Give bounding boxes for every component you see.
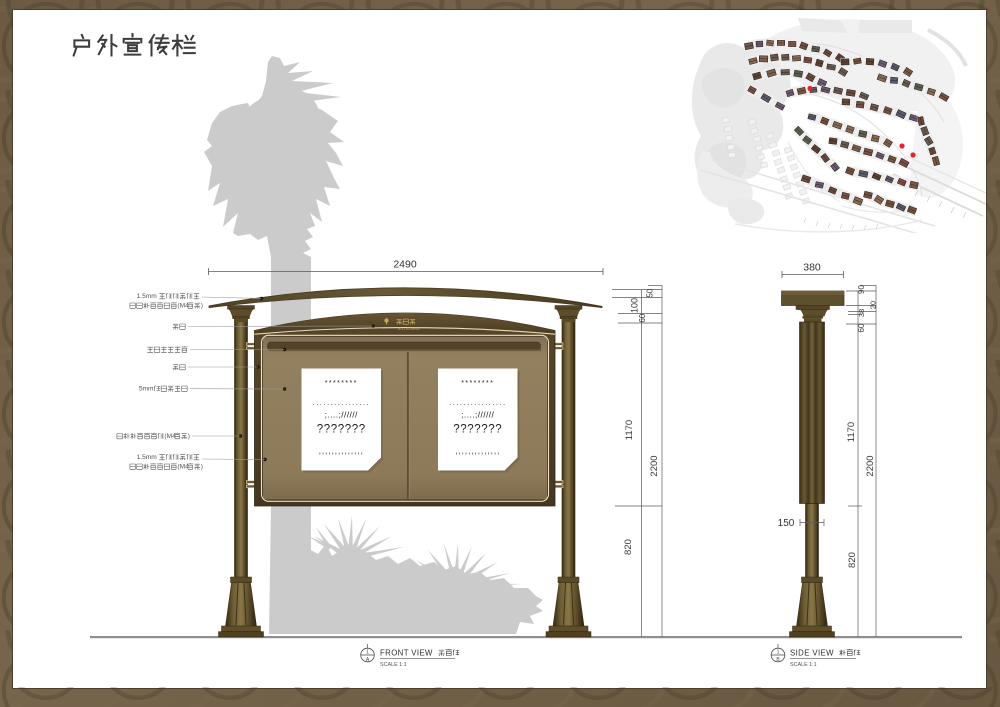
svg-text:820: 820 xyxy=(623,539,634,555)
svg-text:2490: 2490 xyxy=(393,259,417,271)
svg-text:;....;//////: ;....;////// xyxy=(325,410,358,420)
svg-text:60: 60 xyxy=(638,313,647,322)
svg-text:1: 1 xyxy=(777,650,780,656)
svg-text:): ) xyxy=(201,303,203,310)
svg-text:(M4: (M4 xyxy=(177,303,189,310)
svg-text:2200: 2200 xyxy=(865,455,876,476)
svg-text:90: 90 xyxy=(857,285,866,294)
svg-text:FRONT VIEW: FRONT VIEW xyxy=(380,649,433,658)
svg-text:B: B xyxy=(776,657,780,663)
svg-text:********: ******** xyxy=(461,380,494,387)
svg-text:················: ················ xyxy=(449,400,507,409)
svg-text:5mm: 5mm xyxy=(139,386,154,393)
svg-text:(M4: (M4 xyxy=(177,464,189,471)
svg-text:150: 150 xyxy=(778,518,795,529)
svg-text:1: 1 xyxy=(366,650,369,656)
svg-text:100: 100 xyxy=(630,298,640,313)
svg-text:???????: ??????? xyxy=(453,424,502,436)
svg-text:38: 38 xyxy=(857,309,866,317)
svg-text:60: 60 xyxy=(857,323,866,332)
svg-text:SCALE 1:1: SCALE 1:1 xyxy=(380,662,407,668)
svg-text:,,,,,,,,,,,,,,: ,,,,,,,,,,,,,, xyxy=(455,447,500,456)
svg-text:1.5mm: 1.5mm xyxy=(137,454,158,461)
svg-text:50: 50 xyxy=(646,288,655,297)
svg-text:20: 20 xyxy=(869,301,878,309)
svg-text:,,,,,,,,,,,,,,: ,,,,,,,,,,,,,, xyxy=(319,447,364,456)
svg-text:(M4: (M4 xyxy=(164,433,176,440)
svg-text:???????: ??????? xyxy=(317,424,366,436)
svg-text:SCALE 1:1: SCALE 1:1 xyxy=(790,662,817,668)
svg-text:················: ················ xyxy=(312,400,370,409)
svg-text:1170: 1170 xyxy=(624,420,635,440)
svg-text:********: ******** xyxy=(325,380,358,387)
svg-text:): ) xyxy=(188,433,190,440)
svg-text:): ) xyxy=(201,464,203,471)
svg-text:1.5mm: 1.5mm xyxy=(137,293,158,300)
svg-text:A: A xyxy=(366,657,370,663)
svg-text:SIDE VIEW: SIDE VIEW xyxy=(790,649,834,658)
svg-text:1170: 1170 xyxy=(846,422,857,442)
svg-text:820: 820 xyxy=(847,552,858,568)
svg-text:;....;//////: ;....;////// xyxy=(461,410,494,420)
svg-text:380: 380 xyxy=(803,262,821,274)
svg-text:2200: 2200 xyxy=(649,455,660,476)
svg-text:BILLBOARD: BILLBOARD xyxy=(398,327,420,331)
